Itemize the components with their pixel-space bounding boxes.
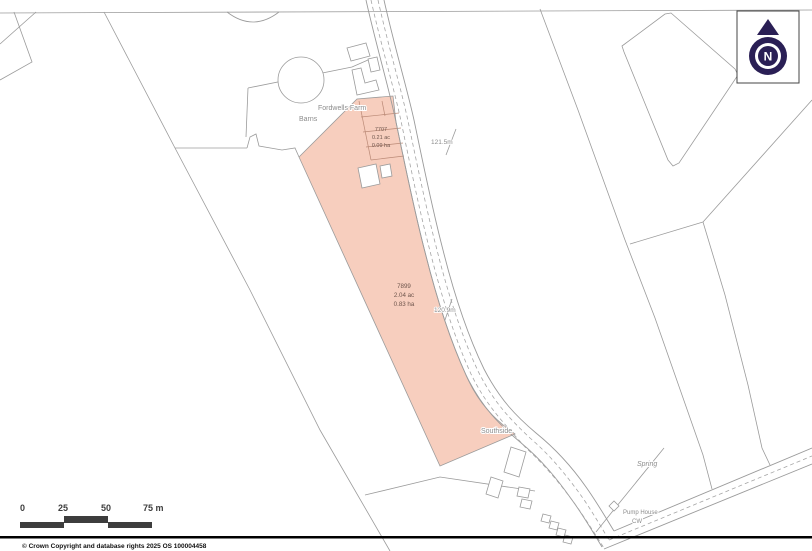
label-cw: CW [632,519,642,525]
parcel-7899-acres: 2.04 ac [394,292,414,299]
southside-buildings [486,447,619,544]
copyright-text: © Crown Copyright and database rights 20… [22,542,207,550]
farm-building-5 [380,164,392,178]
pond-circle [278,57,324,103]
scale-tick-0: 0 [20,503,25,513]
boundary-branch-left [630,222,703,244]
scale-tick-75m: 75 m [143,503,164,513]
roadside-building-1 [517,487,530,498]
map-plan: Fordwells Farm Barns Southside Spring Pu… [0,0,812,551]
boundary-long-diagonal [104,12,390,551]
barn-1 [504,447,526,477]
wedge-field [622,13,738,166]
scale-tick-25: 25 [58,503,68,513]
footer-divider-line [0,536,812,539]
top-arc-feature [227,12,279,22]
roadside-building-2 [520,499,532,509]
boundary-below-parcel [365,477,535,495]
label-spring: Spring [637,461,657,468]
footer: © Crown Copyright and database rights 20… [0,536,812,550]
boundary-farmyard-left [246,88,248,137]
parcel-7899-number: 7899 [397,283,411,290]
scale-bar: 0 25 50 75 m [20,503,164,528]
farm-building-1 [347,43,370,61]
farm-building-4 [358,164,380,188]
boundary-topleft-b [0,12,32,80]
boundary-branch-down [703,222,770,465]
road [604,448,812,549]
parcel-7707-acres: 0.21 ac [372,135,390,141]
farm-building-2 [368,57,380,72]
label-southside: Southside [481,428,512,435]
scale-bar-segment-2 [64,516,108,523]
boundary-top [0,10,812,13]
barn-2 [486,477,503,498]
boundary-topleft-a [0,12,36,44]
farm-building-3 [352,68,379,95]
north-arrow: N [737,11,799,83]
parcel-7899-hectares: 0.83 ha [394,301,415,308]
label-barns: Barns [299,116,318,123]
parcel-7707-hectares: 0.09 ha [372,143,391,149]
boundary-right-diagonal [703,100,812,222]
scale-tick-50: 50 [101,503,111,513]
label-fordwells-farm: Fordwells Farm [318,105,366,112]
pump-house-building [609,501,619,511]
scale-bar-segment-3 [108,522,152,528]
roadside-building-3 [541,514,551,523]
boundary-farmyard-notch [247,134,299,157]
parcel-7707-number: 7707 [375,127,387,133]
label-pump-house: Pump House [623,510,658,516]
north-arrow-letter: N [764,50,773,64]
spot-height-upper: 121.5m [431,139,453,146]
map-canvas: Fordwells Farm Barns Southside Spring Pu… [0,0,812,551]
spot-height-lower: 120.9m [434,307,456,314]
road-dashed-center [609,456,812,540]
scale-bar-segment-1 [20,522,64,528]
